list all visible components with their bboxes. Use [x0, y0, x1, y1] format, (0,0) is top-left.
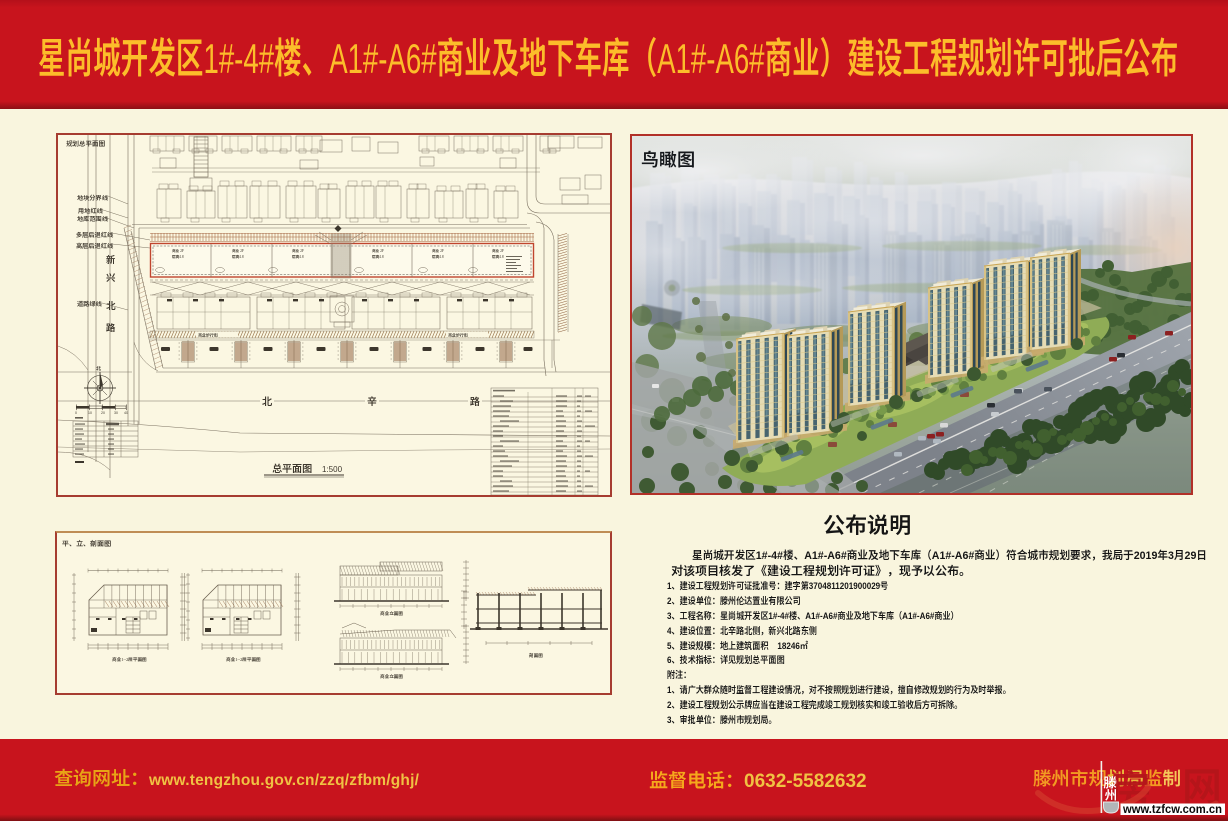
svg-text:总平面图: 总平面图	[272, 460, 312, 475]
svg-text:商业 2F: 商业 2F	[432, 248, 444, 254]
svg-text:商业 2F: 商业 2F	[372, 248, 384, 254]
svg-text:0: 0	[75, 411, 77, 415]
svg-text:层高4.8: 层高4.8	[431, 254, 444, 260]
svg-text:40: 40	[124, 411, 128, 415]
svg-text:高层后退红线: 高层后退红线	[76, 241, 114, 250]
svg-text:层高4.8: 层高4.8	[371, 254, 384, 260]
svg-text:鸟瞰图: 鸟瞰图	[641, 146, 695, 172]
svg-text:层高4.8: 层高4.8	[291, 254, 304, 260]
svg-text:层高4.8: 层高4.8	[171, 254, 184, 260]
svg-text:地库范围线: 地库范围线	[77, 214, 109, 223]
svg-text:新: 新	[106, 252, 116, 266]
svg-text:北: 北	[262, 393, 273, 408]
svg-text:道路绿线: 道路绿线	[77, 299, 103, 308]
svg-text:北: 北	[95, 365, 101, 372]
svg-text:北: 北	[106, 298, 116, 312]
svg-text:商业1~2层平面图: 商业1~2层平面图	[112, 656, 147, 663]
svg-text:地块分界线: 地块分界线	[77, 193, 109, 202]
svg-text:商业1~2层平面图: 商业1~2层平面图	[226, 656, 261, 663]
svg-text:路: 路	[106, 320, 116, 334]
svg-text:30: 30	[114, 411, 118, 415]
svg-text:辛: 辛	[367, 393, 377, 408]
svg-text:商业 2F: 商业 2F	[492, 248, 504, 254]
svg-text:兴: 兴	[106, 270, 116, 284]
svg-text:商业 2F: 商业 2F	[232, 248, 244, 254]
svg-text:商业 2F: 商业 2F	[172, 248, 184, 254]
svg-text:20: 20	[101, 411, 105, 415]
svg-text:1:500: 1:500	[322, 465, 343, 474]
svg-text:平、立、剖面图: 平、立、剖面图	[62, 539, 111, 549]
svg-text:www.tzfcw.com.cn: www.tzfcw.com.cn	[1122, 802, 1222, 816]
svg-text:层高4.8: 层高4.8	[231, 254, 244, 260]
svg-text:路: 路	[470, 393, 481, 408]
svg-text:商业步行街: 商业步行街	[198, 333, 218, 339]
svg-text:层高4.8: 层高4.8	[491, 254, 504, 260]
svg-text:商业步行街: 商业步行街	[448, 333, 468, 339]
svg-text:10: 10	[88, 411, 92, 415]
svg-text:商业立面图: 商业立面图	[380, 673, 403, 680]
svg-text:州: 州	[1105, 785, 1118, 804]
svg-text:剖面图: 剖面图	[529, 652, 543, 659]
svg-text:商业 2F: 商业 2F	[292, 248, 304, 254]
svg-text:商业立面图: 商业立面图	[380, 610, 403, 617]
svg-text:多层后退红线: 多层后退红线	[76, 230, 114, 239]
svg-text:规划总平面图: 规划总平面图	[66, 138, 106, 148]
